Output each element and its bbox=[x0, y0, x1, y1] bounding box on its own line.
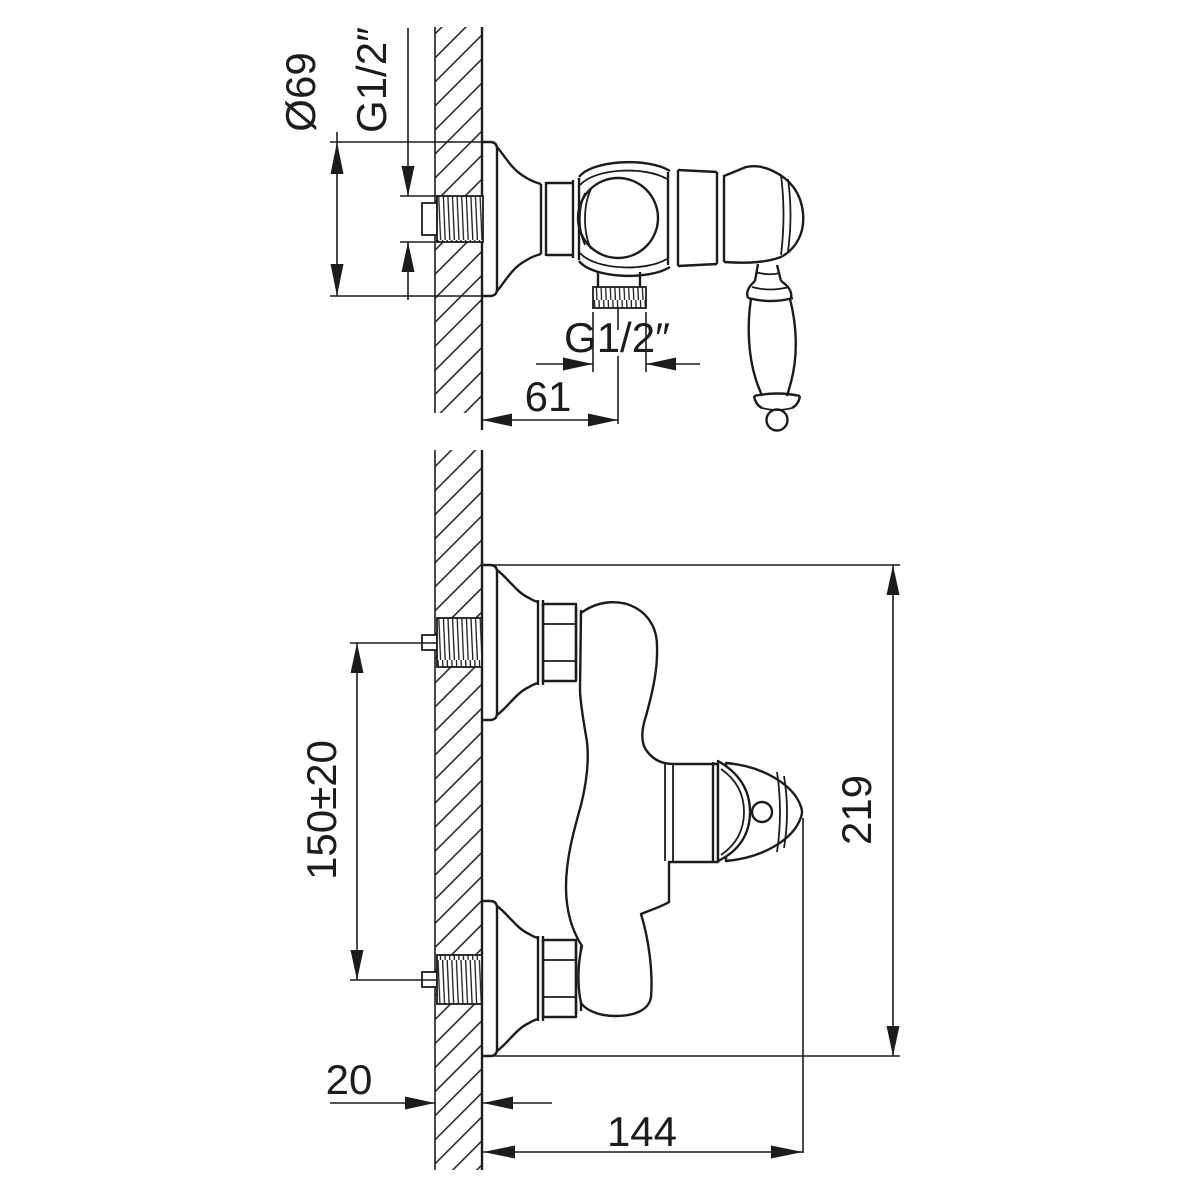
side-view: Ø69 G1/2″ G1/2″ bbox=[277, 27, 803, 431]
bell-bottom bbox=[497, 1019, 538, 1051]
arrow-up bbox=[351, 643, 364, 673]
lever-handle bbox=[747, 264, 800, 431]
dim-label-overall-height: 219 bbox=[833, 775, 880, 845]
escutcheon-bell-bottom bbox=[497, 254, 541, 291]
hex-nut-upper bbox=[543, 604, 576, 681]
escutcheon-bell-top bbox=[497, 147, 541, 184]
inlet-thread-lower bbox=[437, 955, 482, 1004]
dome-band bbox=[788, 179, 791, 251]
grip-flare-top bbox=[754, 394, 800, 397]
dim-label-overall-width: 144 bbox=[607, 1108, 677, 1155]
arrow-left bbox=[483, 1097, 513, 1110]
arrow-up bbox=[402, 242, 415, 272]
pipe-stub bbox=[422, 203, 437, 235]
dim-wall-to-outlet: 61 bbox=[482, 373, 618, 427]
dim-label-escutcheon-diameter: Ø69 bbox=[277, 52, 324, 131]
lever-collar-ring bbox=[748, 298, 793, 301]
inlet-thread-upper bbox=[437, 618, 482, 667]
hex-nut-lower bbox=[543, 940, 576, 1017]
arrow-right bbox=[405, 1097, 435, 1110]
outlet-thread bbox=[593, 287, 646, 308]
arrow-up bbox=[331, 142, 344, 174]
mixer-body bbox=[566, 602, 718, 1016]
dome-band bbox=[781, 175, 784, 255]
arrow-down bbox=[351, 950, 364, 980]
technical-drawing: Ø69 G1/2″ G1/2″ bbox=[0, 0, 1200, 1200]
end-dome-side bbox=[724, 166, 803, 262]
front-view: 150±20 219 20 144 bbox=[298, 450, 900, 1170]
escutcheon-plate bbox=[482, 142, 497, 296]
dim-inlet-spacing: 150±20 bbox=[298, 643, 437, 980]
dim-label-outlet-thread: G1/2″ bbox=[564, 314, 670, 361]
lever-collar bbox=[747, 281, 755, 298]
drawing-page: Ø69 G1/2″ G1/2″ bbox=[0, 0, 1200, 1200]
inlet-thread bbox=[437, 196, 483, 242]
arrow-left bbox=[483, 1146, 515, 1159]
dim-wall-thread: G1/2″ bbox=[348, 27, 437, 300]
arrow-down bbox=[887, 1026, 900, 1056]
lever-grip-left bbox=[749, 299, 762, 396]
dim-label-wall-thread: G1/2″ bbox=[348, 27, 395, 133]
escutcheon-plate-lower bbox=[482, 901, 497, 1056]
arrow-left bbox=[482, 414, 512, 427]
body-cylinder bbox=[668, 170, 724, 266]
grip-flare-side bbox=[754, 396, 762, 408]
body-bottom bbox=[678, 264, 717, 266]
arrow-up bbox=[887, 565, 900, 595]
dim-label-inlet-spacing: 150±20 bbox=[298, 740, 345, 880]
ball-joint-housing bbox=[578, 162, 670, 276]
dim-overall-height: 219 bbox=[833, 565, 900, 1056]
arrow-right bbox=[771, 1146, 803, 1159]
dim-label-wall-thickness: 20 bbox=[326, 1056, 373, 1103]
arrow-right bbox=[588, 414, 618, 427]
wall-hatch bbox=[435, 450, 482, 1170]
lever-neck-ring bbox=[756, 272, 780, 274]
escutcheon-side bbox=[482, 142, 579, 296]
dim-label-wall-to-outlet: 61 bbox=[525, 373, 572, 420]
lever-finial-ball bbox=[767, 410, 788, 431]
bell-bottom bbox=[497, 683, 538, 715]
inlet-pipe bbox=[422, 196, 483, 242]
body-top bbox=[678, 170, 717, 172]
lever-collar bbox=[781, 281, 791, 298]
lever-collar-ring bbox=[752, 287, 789, 290]
escutcheon-plate-upper bbox=[482, 565, 497, 720]
arrow-down bbox=[331, 264, 344, 296]
grip-flare-side bbox=[792, 396, 800, 408]
lever-grip-right bbox=[787, 299, 796, 396]
bell-top bbox=[497, 906, 538, 938]
arrow-down bbox=[402, 166, 415, 196]
bell-top bbox=[497, 570, 538, 602]
shroud-bottom-inner bbox=[580, 253, 667, 267]
